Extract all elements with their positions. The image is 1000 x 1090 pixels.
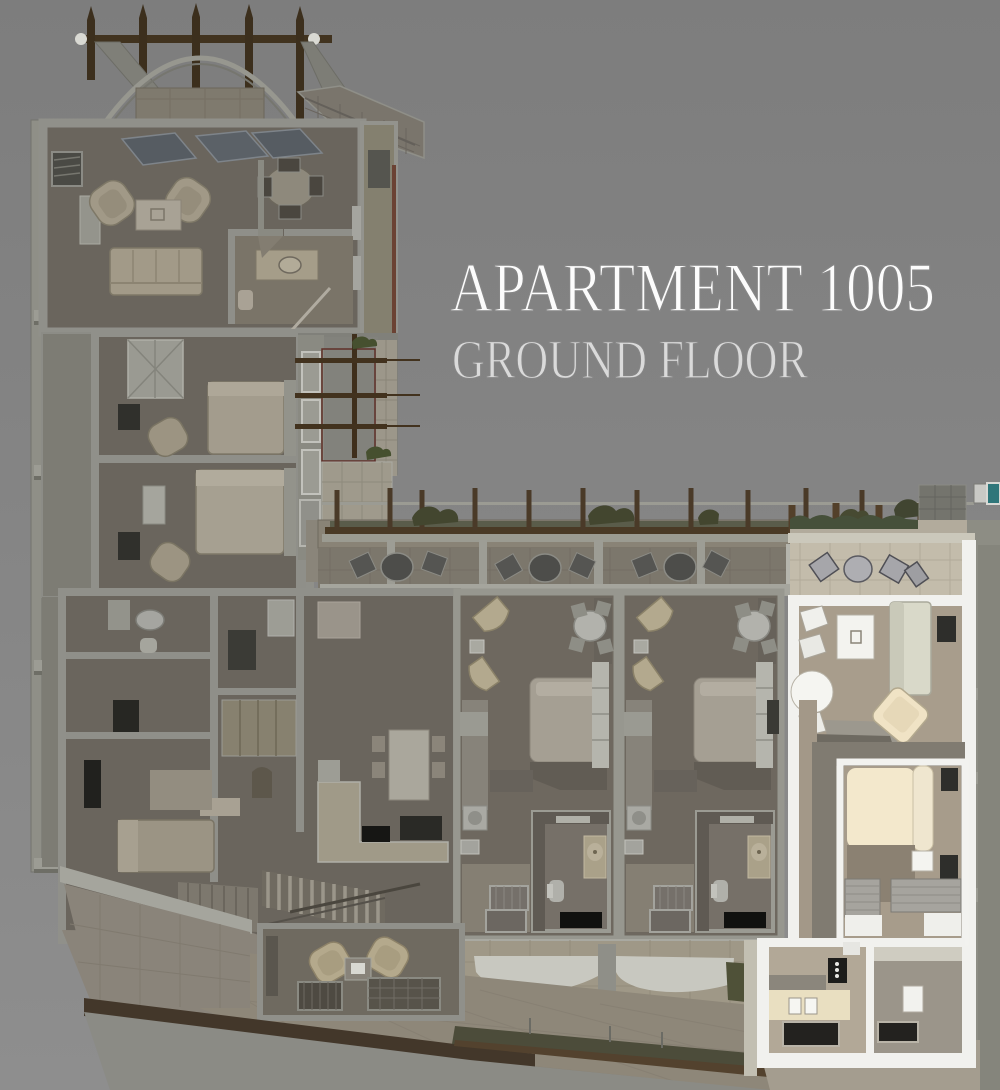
svg-text:GROUND FLOOR: GROUND FLOOR: [452, 329, 808, 390]
svg-text:APARTMENT 1005: APARTMENT 1005: [450, 250, 935, 327]
